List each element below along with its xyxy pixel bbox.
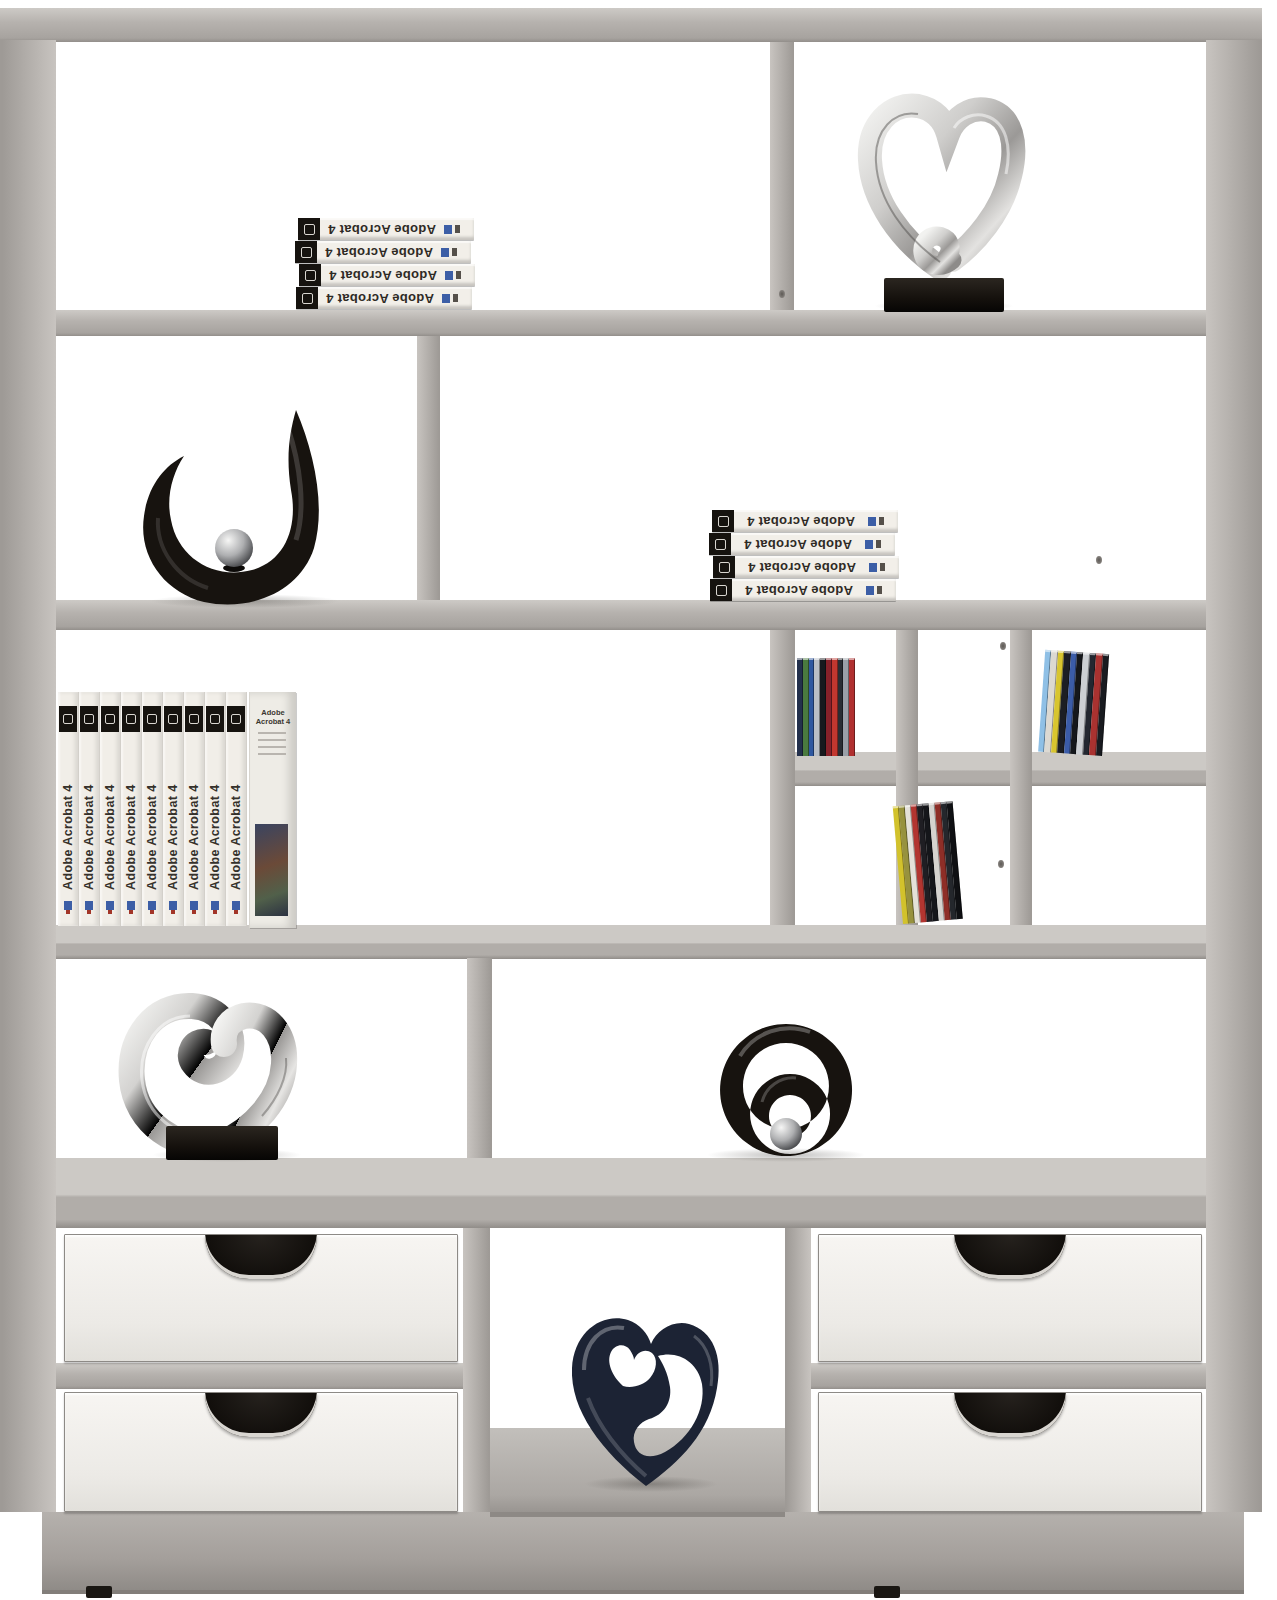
book: Adobe Acrobat 4: [295, 241, 471, 263]
drawer-pull-cutout: [205, 1393, 317, 1437]
publisher-logo-icon: [59, 706, 77, 732]
brand-mark-icon: [442, 294, 472, 303]
navy-heart-sculpture: [560, 1290, 732, 1492]
book-title: Adobe Acrobat 4: [320, 222, 444, 237]
wood-knot: [1000, 642, 1006, 650]
brand-mark-icon: [85, 901, 93, 910]
cover-text-lines: [258, 732, 286, 758]
plinth-base: [42, 1512, 1244, 1594]
brand-mark-icon: [190, 901, 198, 910]
shelf-board-row1: [56, 310, 1206, 336]
publisher-logo-icon: [164, 706, 182, 732]
drawer-unit-left-wall: [463, 1228, 490, 1512]
publisher-logo-icon: [298, 218, 320, 240]
drawer-top-left: [64, 1234, 458, 1362]
publisher-logo-icon: [713, 556, 735, 578]
publisher-logo-icon: [709, 533, 731, 555]
book: Adobe Acrobat 4: [709, 533, 895, 555]
book-title: Adobe Acrobat 4: [735, 560, 869, 575]
book-row-standing: Adobe Acrobat 4Adobe Acrobat 4Adobe Acro…: [58, 692, 296, 928]
brand-mark-icon: [444, 225, 474, 234]
book-title: Adobe Acrobat 4: [58, 750, 78, 890]
brand-mark-icon: [865, 540, 895, 549]
drawer-pull-cutout: [954, 1235, 1066, 1279]
book-title: Adobe Acrobat 4: [253, 708, 293, 726]
drawer-pull-cutout: [205, 1235, 317, 1279]
publisher-logo-icon: [710, 579, 732, 601]
book-spine: Adobe Acrobat 4: [226, 692, 247, 926]
divider-row3-cube-right: [1010, 630, 1032, 925]
book-stack-row2: Adobe Acrobat 4Adobe Acrobat 4Adobe Acro…: [710, 510, 896, 602]
plinth-foot: [86, 1586, 112, 1598]
publisher-logo-icon: [296, 287, 318, 309]
drawer-pull-cutout: [954, 1393, 1066, 1437]
brand-mark-icon: [232, 901, 240, 910]
drawer-rail-left: [56, 1363, 463, 1389]
book-spine: Adobe Acrobat 4: [205, 692, 226, 926]
shelf-left-panel: [0, 40, 56, 1512]
book-title: Adobe Acrobat 4: [226, 750, 246, 890]
plinth-foot: [874, 1586, 900, 1598]
book-spine: Adobe Acrobat 4: [184, 692, 205, 926]
drawer-rail-right: [811, 1363, 1206, 1389]
publisher-logo-icon: [185, 706, 203, 732]
divider-row2: [417, 336, 440, 600]
brand-mark-icon: [869, 563, 899, 572]
divider-row3-main: [770, 630, 795, 925]
book-title: Adobe Acrobat 4: [79, 750, 99, 890]
book-title: Adobe Acrobat 4: [321, 268, 445, 283]
book-title: Adobe Acrobat 4: [732, 583, 866, 598]
book-spine: Adobe Acrobat 4: [142, 692, 163, 926]
book-title: Adobe Acrobat 4: [205, 750, 225, 890]
drawer-top-right: [818, 1234, 1202, 1362]
publisher-logo-icon: [143, 706, 161, 732]
wood-knot: [1096, 556, 1102, 564]
brand-mark-icon: [868, 517, 898, 526]
book: Adobe Acrobat 4: [712, 510, 898, 532]
book-spine: Adobe Acrobat 4: [79, 692, 100, 926]
book-title: Adobe Acrobat 4: [100, 750, 120, 890]
book: Adobe Acrobat 4: [299, 264, 475, 286]
silver-heart-sculpture: [856, 72, 1026, 280]
book-title: Adobe Acrobat 4: [163, 750, 183, 890]
black-double-ring-sculpture: [714, 1020, 858, 1162]
brand-mark-icon: [211, 901, 219, 910]
book: Adobe Acrobat 4: [296, 287, 472, 309]
shelf-board-above-drawers: [56, 1158, 1206, 1228]
wood-knot: [779, 290, 785, 298]
book: Adobe Acrobat 4: [713, 556, 899, 578]
shelf-board-row3: [56, 925, 1206, 959]
cd-cube-mid-shelf: [795, 752, 1206, 786]
brand-mark-icon: [441, 248, 471, 257]
wood-knot: [998, 860, 1004, 868]
brand-mark-icon: [64, 901, 72, 910]
book-spine: Adobe Acrobat 4: [163, 692, 184, 926]
book-spine-row: Adobe Acrobat 4Adobe Acrobat 4Adobe Acro…: [58, 692, 247, 928]
product-photo-scene: Adobe Acrobat 4Adobe Acrobat 4Adobe Acro…: [0, 0, 1277, 1600]
publisher-logo-icon: [206, 706, 224, 732]
drawer-unit-right-wall: [785, 1228, 811, 1512]
publisher-logo-icon: [295, 241, 317, 263]
book-title: Adobe Acrobat 4: [734, 514, 868, 529]
publisher-logo-icon: [80, 706, 98, 732]
cover-artwork: [255, 824, 288, 916]
divider-row4: [467, 958, 492, 1158]
sculpture-black-base: [884, 278, 1004, 312]
book-stack-top-left: Adobe Acrobat 4Adobe Acrobat 4Adobe Acro…: [296, 218, 472, 310]
brand-mark-icon: [106, 901, 114, 910]
publisher-logo-icon: [299, 264, 321, 286]
book: Adobe Acrobat 4: [298, 218, 474, 240]
book-title: Adobe Acrobat 4: [731, 537, 865, 552]
cd-stack-upper-left: [797, 658, 855, 756]
cd-stack-lower-middle: [893, 801, 963, 924]
cd-stack-upper-right: [1038, 650, 1109, 756]
brand-mark-icon: [127, 901, 135, 910]
book-spine: Adobe Acrobat 4: [121, 692, 142, 926]
book-title: Adobe Acrobat 4: [121, 750, 141, 890]
drawer-bottom-right: [818, 1392, 1202, 1512]
book-title: Adobe Acrobat 4: [317, 245, 441, 260]
book-spine: Adobe Acrobat 4: [58, 692, 79, 926]
book: Adobe Acrobat 4: [710, 579, 896, 601]
book-title: Adobe Acrobat 4: [184, 750, 204, 890]
cd-case: [849, 658, 855, 756]
publisher-logo-icon: [227, 706, 245, 732]
brand-mark-icon: [169, 901, 177, 910]
brand-mark-icon: [148, 901, 156, 910]
drawer-bottom-left: [64, 1392, 458, 1512]
book-title: Adobe Acrobat 4: [142, 750, 162, 890]
brand-mark-icon: [866, 586, 896, 595]
shelf-right-panel: [1206, 40, 1262, 1512]
divider-row1: [770, 42, 794, 310]
publisher-logo-icon: [122, 706, 140, 732]
sculpture-black-base: [166, 1126, 278, 1160]
publisher-logo-icon: [712, 510, 734, 532]
publisher-logo-icon: [101, 706, 119, 732]
book-title: Adobe Acrobat 4: [318, 291, 442, 306]
shelf-top-board: [0, 8, 1262, 42]
book-spine: Adobe Acrobat 4: [100, 692, 121, 926]
black-horn-sculpture: [138, 408, 334, 608]
book-front-cover: Adobe Acrobat 4: [249, 692, 296, 928]
brand-mark-icon: [445, 271, 475, 280]
